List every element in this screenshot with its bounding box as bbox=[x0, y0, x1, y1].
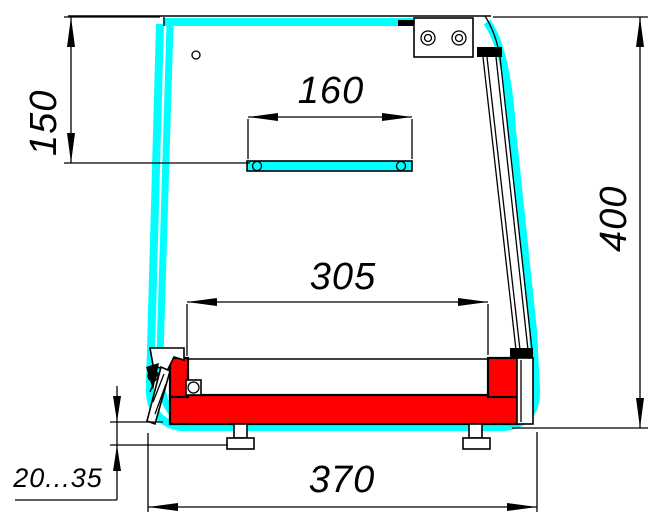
dimension-shelf-width: 160 bbox=[248, 70, 412, 159]
upper-shelf bbox=[247, 161, 412, 171]
arrow-down-icon bbox=[67, 133, 75, 163]
panel-hole bbox=[192, 51, 200, 59]
base-tray bbox=[170, 358, 533, 424]
mounting-bracket bbox=[414, 18, 473, 57]
tray-slab bbox=[170, 395, 518, 424]
top-rail-segment bbox=[398, 20, 414, 26]
dimension-label-160: 160 bbox=[298, 70, 364, 112]
dimension-label-150: 150 bbox=[23, 90, 65, 156]
dimension-label-20-35: 20...35 bbox=[12, 463, 103, 493]
arrow-right-icon bbox=[458, 298, 488, 306]
glass-channel bbox=[517, 358, 533, 424]
arrow-left-icon bbox=[148, 503, 178, 511]
dimension-label-400: 400 bbox=[593, 186, 635, 252]
arrow-up-icon bbox=[67, 17, 75, 47]
dimension-well-width: 305 bbox=[187, 256, 488, 356]
dimension-label-305: 305 bbox=[310, 256, 376, 298]
dimension-label-370: 370 bbox=[309, 459, 375, 501]
arrow-down-icon bbox=[113, 396, 121, 422]
arrow-right-icon bbox=[382, 113, 412, 121]
glass-top-clamp bbox=[477, 47, 502, 57]
arrow-up-icon bbox=[113, 445, 121, 471]
glass-bottom-clamp bbox=[510, 348, 533, 358]
arrow-up-icon bbox=[636, 17, 644, 47]
cross-section-drawing: 150 160 305 400 370 20...35 bbox=[0, 0, 661, 529]
arrow-left-icon bbox=[248, 113, 278, 121]
technical-drawing-canvas: 150 160 305 400 370 20...35 bbox=[0, 0, 661, 529]
arrow-right-icon bbox=[507, 503, 537, 511]
arrow-down-icon bbox=[636, 398, 644, 428]
arrow-left-icon bbox=[187, 298, 217, 306]
tray-right-post bbox=[488, 358, 518, 397]
dimension-front-panel-height: 150 bbox=[23, 17, 250, 163]
